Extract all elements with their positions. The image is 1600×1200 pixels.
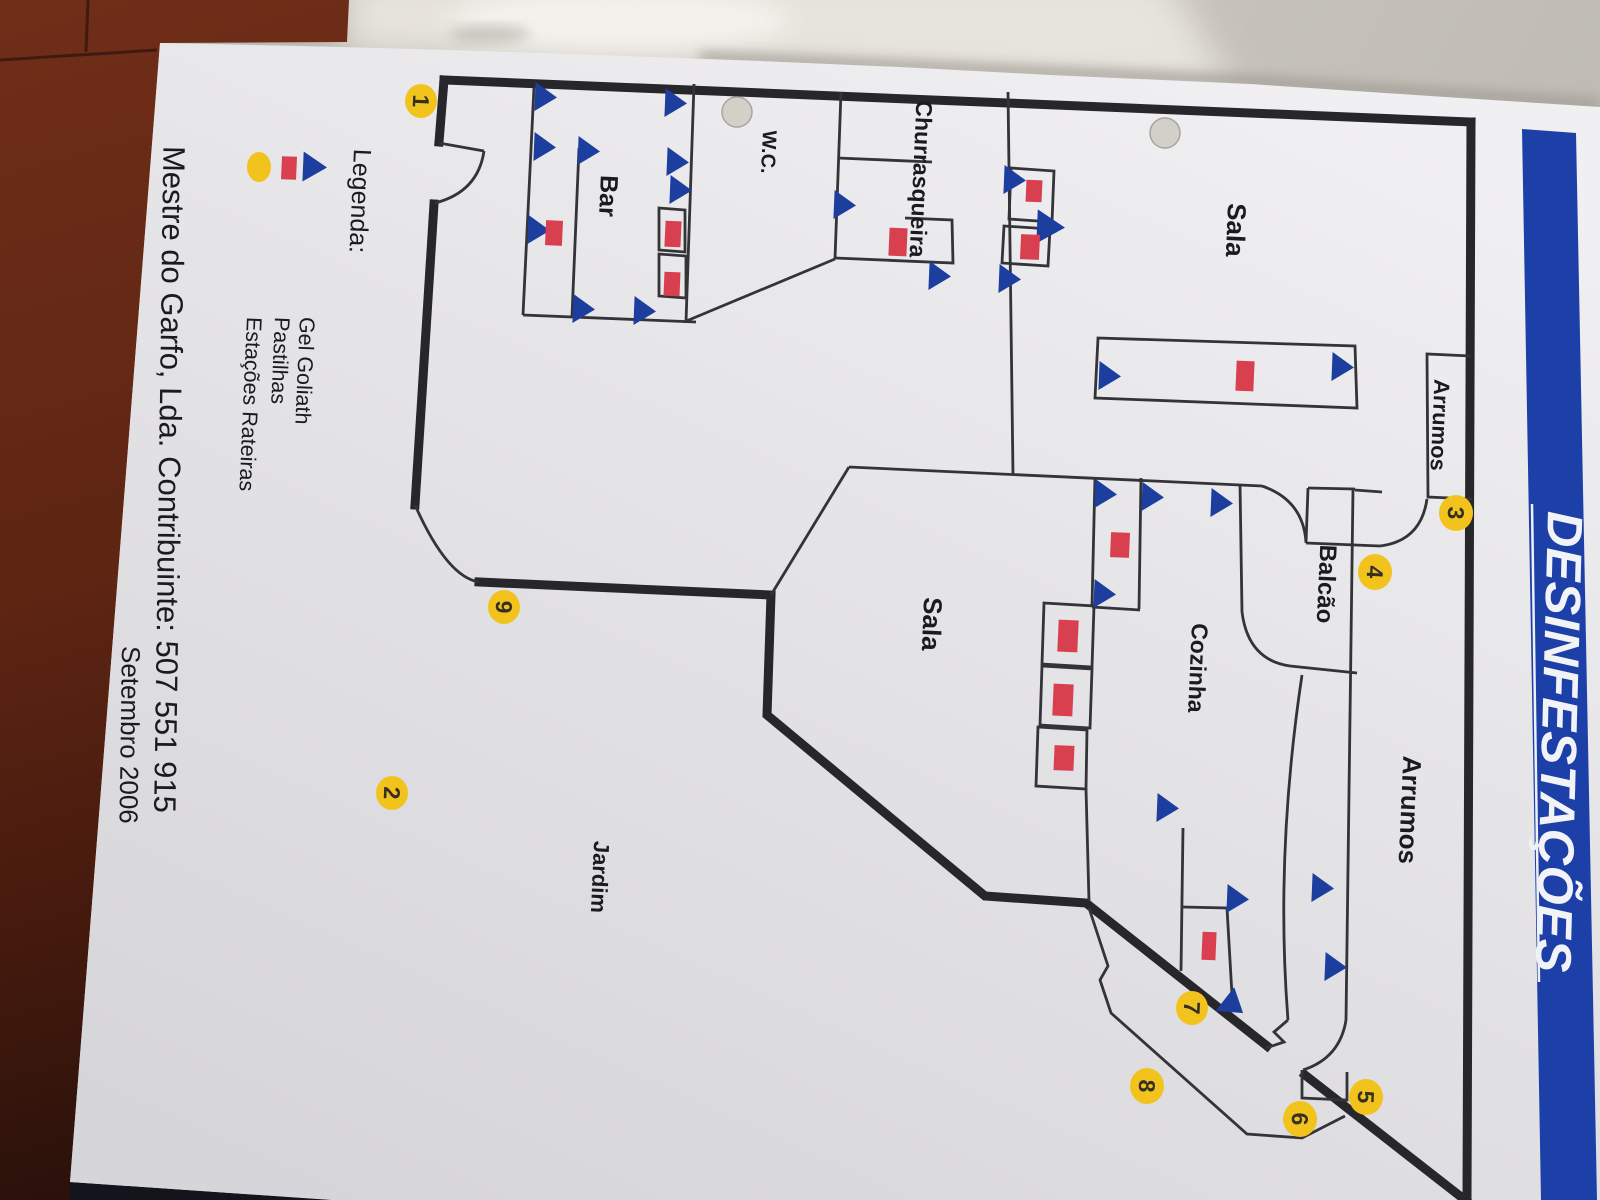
svg-text:8: 8	[1134, 1079, 1161, 1093]
svg-text:4: 4	[1362, 565, 1389, 579]
svg-text:9: 9	[491, 600, 518, 614]
svg-text:2: 2	[379, 786, 406, 800]
svg-text:5: 5	[1353, 1090, 1380, 1104]
svg-text:7: 7	[1179, 1001, 1206, 1015]
svg-text:Cozinha: Cozinha	[1183, 623, 1213, 714]
svg-text:Bar: Bar	[593, 175, 623, 218]
svg-text:3: 3	[1443, 506, 1470, 520]
svg-text:Sala: Sala	[916, 597, 948, 652]
svg-text:Setembro 2006: Setembro 2006	[114, 646, 146, 824]
svg-text:Legenda:: Legenda:	[343, 148, 376, 253]
svg-text:Arrumos: Arrumos	[1426, 379, 1455, 472]
svg-text:Balcão: Balcão	[1311, 544, 1341, 624]
svg-text:Jardim: Jardim	[586, 840, 614, 913]
svg-text:1: 1	[408, 94, 435, 108]
svg-text:Arrumos: Arrumos	[1393, 755, 1428, 865]
svg-text:W.C.: W.C.	[756, 130, 780, 174]
svg-text:Gel Goliath: Gel Goliath	[290, 316, 319, 425]
svg-text:6: 6	[1287, 1112, 1314, 1126]
svg-text:Sala: Sala	[1220, 203, 1252, 258]
svg-text:Pastilhas: Pastilhas	[266, 316, 294, 404]
